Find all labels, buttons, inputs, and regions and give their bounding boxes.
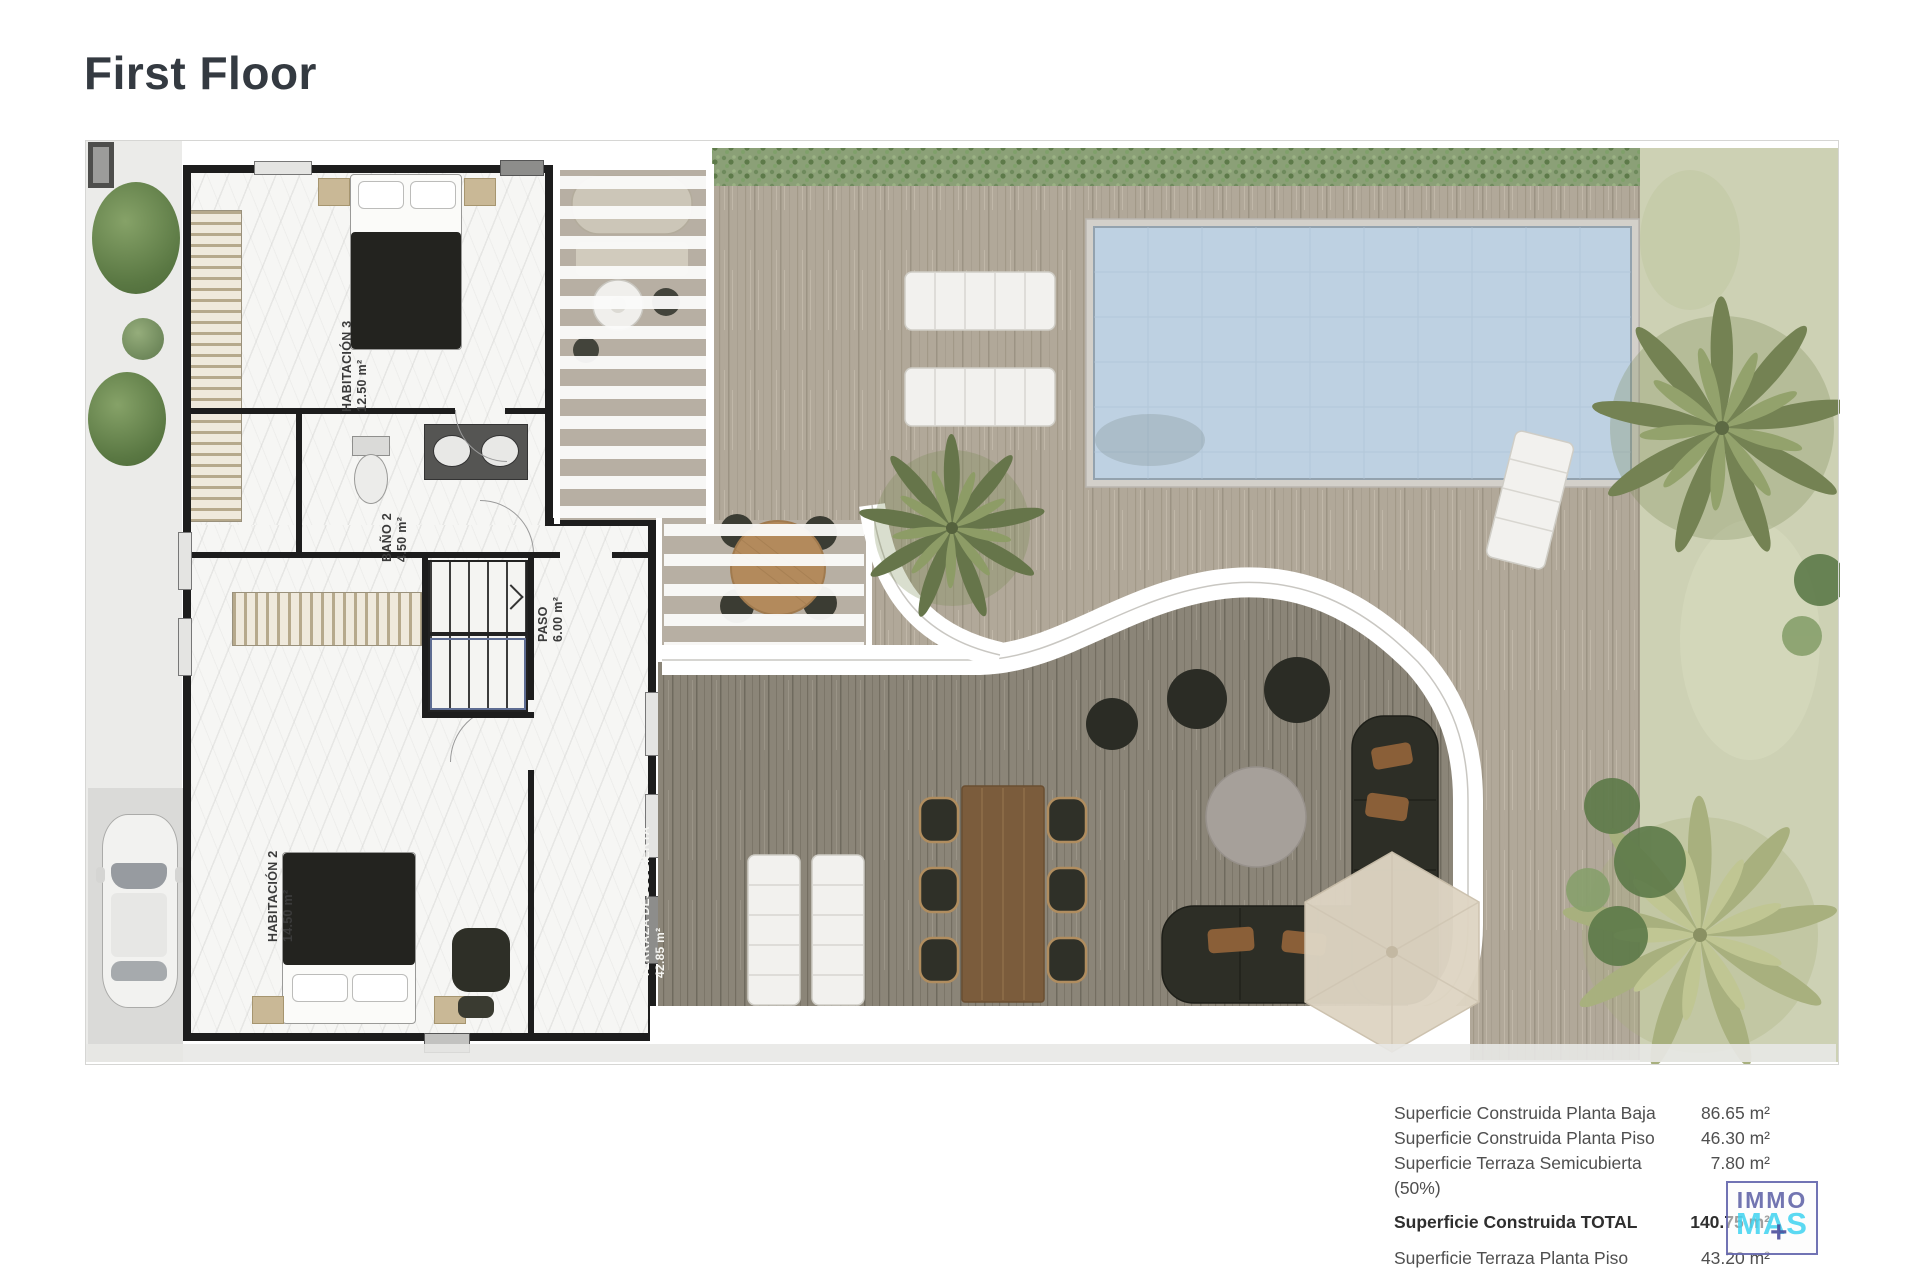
plot-marker	[88, 142, 114, 188]
immo-mas-logo: IMMO MAS +	[1726, 1181, 1818, 1255]
logo-plus-icon: +	[1770, 1216, 1788, 1250]
entry-door	[500, 160, 544, 176]
garden-terrace-graphic	[550, 145, 1840, 1065]
room-area: 12.50 m²	[355, 320, 370, 412]
outdoor-dining-set	[920, 786, 1086, 1002]
row-label: Superficie Construida Planta Baja	[1394, 1101, 1656, 1126]
nightstand	[252, 996, 284, 1024]
nightstand	[318, 178, 350, 206]
partition	[422, 712, 534, 718]
room-label-paso: PASO 6.00 m²	[536, 597, 566, 642]
wall	[183, 165, 191, 1041]
round-gray-table	[1206, 767, 1306, 867]
wardrobe-bedroom2	[232, 592, 422, 646]
partition	[422, 556, 428, 718]
pillow	[292, 974, 348, 1002]
row-label: Superficie Terraza Semicubierta (50%)	[1394, 1151, 1678, 1201]
bush	[122, 318, 164, 360]
nightstand	[464, 178, 496, 206]
window	[254, 161, 312, 175]
table-row: Superficie Terraza Planta Piso 43.20 m²	[1394, 1246, 1770, 1271]
room-label-terraza-descubierta: TERRAZA DESCUBIERTA 42.85 m²	[638, 826, 668, 978]
car-windshield	[111, 863, 167, 889]
floor-plan: HABITACIÓN 3 12.50 m² BAÑO 2 4.50 m² PAS…	[0, 0, 1920, 1280]
row-label: Superficie Terraza Planta Piso	[1394, 1246, 1628, 1271]
staircase-lower-flight	[430, 638, 526, 710]
partition	[528, 770, 534, 1033]
staircase-divider	[428, 632, 528, 636]
row-label: Superficie Construida Planta Piso	[1394, 1126, 1655, 1151]
wardrobe-bedroom3	[190, 210, 242, 522]
room-area: 42.85 m²	[653, 826, 668, 978]
partition	[190, 408, 455, 414]
table-row: Superficie Construida Planta Piso 46.30 …	[1394, 1126, 1770, 1151]
wall	[183, 165, 553, 173]
room-area: 14.50 m²	[281, 850, 296, 942]
row-value: 86.65 m²	[1678, 1101, 1770, 1126]
tree	[92, 182, 180, 294]
partition	[505, 408, 547, 414]
window	[178, 532, 192, 590]
pillow	[358, 181, 404, 209]
car-top-view	[102, 814, 178, 1008]
room-area: 6.00 m²	[551, 597, 566, 642]
window	[178, 618, 192, 676]
hedge	[712, 148, 1640, 188]
row-value: 46.30 m²	[1678, 1126, 1770, 1151]
toilet-tank	[352, 436, 390, 456]
room-name: BAÑO 2	[380, 513, 395, 562]
partition	[296, 408, 302, 558]
partition	[528, 556, 534, 700]
toilet-bowl	[354, 454, 388, 504]
partition	[190, 552, 560, 558]
surface-summary-table: Superficie Construida Planta Baja 86.65 …	[1394, 1101, 1770, 1271]
room-name: PASO	[536, 597, 551, 642]
plot-edge-strip	[86, 1044, 1836, 1062]
armchair	[452, 928, 510, 992]
tree	[88, 372, 166, 466]
room-name: TERRAZA DESCUBIERTA	[638, 826, 653, 978]
car-rear-window	[111, 961, 167, 981]
pillow	[352, 974, 408, 1002]
room-label-habitacion3: HABITACIÓN 3 12.50 m²	[340, 320, 370, 412]
car-roof	[111, 893, 167, 957]
row-label: Superficie Construida TOTAL	[1394, 1210, 1637, 1235]
room-area: 4.50 m²	[395, 513, 410, 562]
table-row-total: Superficie Construida TOTAL 140.75 m²	[1394, 1210, 1770, 1235]
room-label-bano2: BAÑO 2 4.50 m²	[380, 513, 410, 562]
room-label-habitacion2: HABITACIÓN 2 14.50 m²	[266, 850, 296, 942]
room-name: HABITACIÓN 2	[266, 850, 281, 942]
ottoman	[458, 996, 494, 1018]
car-mirror	[96, 867, 105, 883]
room-name: HABITACIÓN 3	[340, 320, 355, 412]
table-row: Superficie Construida Planta Baja 86.65 …	[1394, 1101, 1770, 1126]
table-row: Superficie Terraza Semicubierta (50%) 7.…	[1394, 1151, 1770, 1201]
pillow	[410, 181, 456, 209]
duvet-bedroom2	[283, 853, 415, 965]
